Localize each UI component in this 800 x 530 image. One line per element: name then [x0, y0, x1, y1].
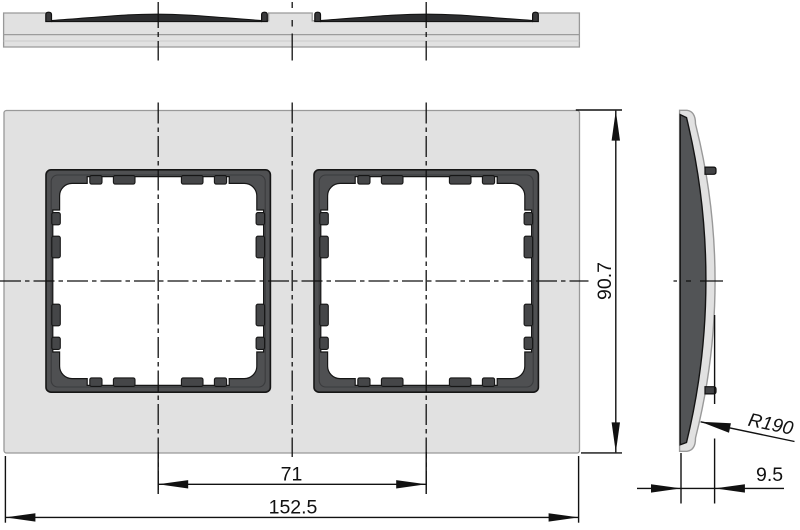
svg-text:9.5: 9.5	[756, 464, 783, 486]
svg-text:152.5: 152.5	[269, 497, 318, 519]
svg-text:90.7: 90.7	[594, 262, 616, 300]
svg-text:71: 71	[281, 463, 303, 485]
svg-text:R190: R190	[746, 410, 795, 440]
